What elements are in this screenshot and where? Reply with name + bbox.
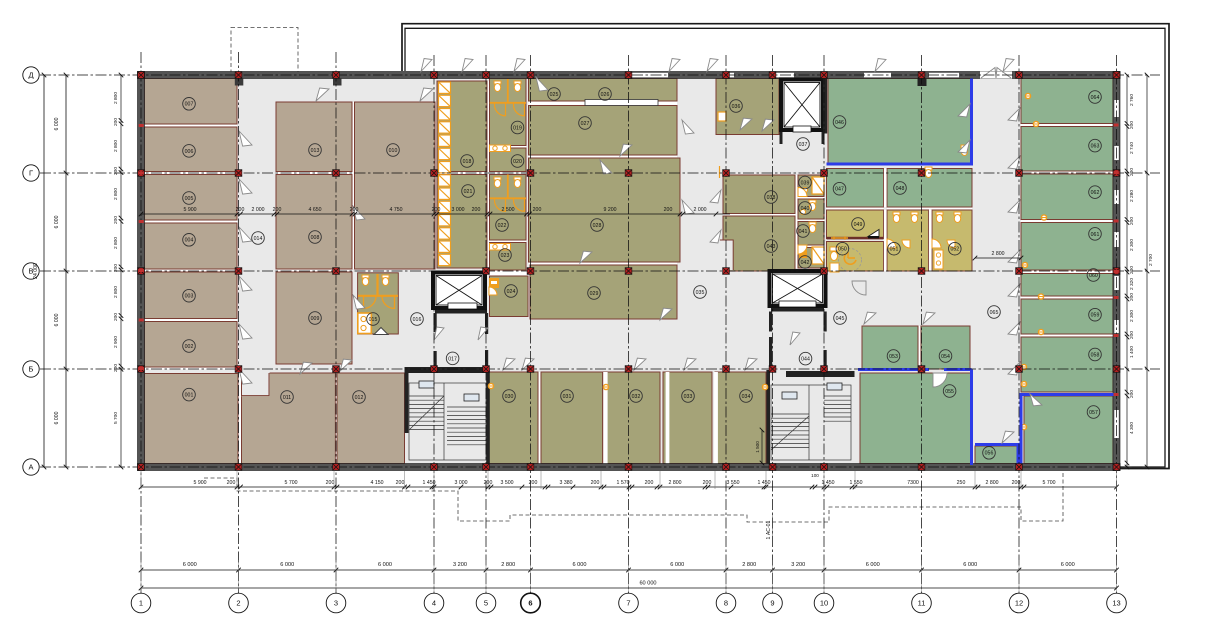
svg-text:040: 040 [801, 206, 810, 212]
svg-text:041: 041 [799, 229, 808, 235]
svg-text:200: 200 [113, 167, 119, 175]
svg-text:200: 200 [1129, 121, 1135, 129]
svg-text:200: 200 [236, 207, 245, 213]
svg-text:6 000: 6 000 [1061, 562, 1075, 568]
svg-text:200: 200 [1129, 331, 1135, 339]
svg-text:024: 024 [507, 289, 516, 295]
svg-text:5 700: 5 700 [113, 412, 119, 424]
svg-text:200: 200 [664, 207, 673, 213]
svg-text:021: 021 [464, 189, 473, 195]
svg-text:4 750: 4 750 [390, 207, 403, 213]
svg-text:4 150: 4 150 [371, 480, 384, 486]
svg-text:2 800: 2 800 [669, 480, 682, 486]
svg-text:036: 036 [732, 104, 741, 110]
svg-text:200: 200 [703, 480, 712, 486]
svg-text:065: 065 [990, 310, 999, 316]
svg-text:029: 029 [590, 291, 599, 297]
svg-text:4: 4 [432, 599, 436, 608]
svg-text:7300: 7300 [907, 480, 919, 486]
svg-text:039: 039 [801, 180, 810, 186]
svg-text:Г: Г [29, 169, 33, 178]
svg-text:023: 023 [501, 253, 510, 259]
svg-text:6 000: 6 000 [280, 562, 294, 568]
svg-text:200: 200 [529, 480, 538, 486]
svg-text:010: 010 [389, 148, 398, 154]
svg-text:2 500: 2 500 [502, 207, 515, 213]
svg-text:001: 001 [185, 393, 194, 399]
svg-text:200: 200 [350, 207, 359, 213]
svg-text:014: 014 [254, 236, 263, 242]
svg-text:2 800: 2 800 [113, 286, 119, 298]
svg-text:056: 056 [985, 451, 994, 457]
svg-text:200: 200 [1129, 390, 1135, 398]
svg-text:9: 9 [770, 599, 774, 608]
svg-text:042: 042 [801, 260, 810, 266]
svg-text:012: 012 [355, 395, 364, 401]
svg-text:5 900: 5 900 [184, 207, 197, 213]
svg-text:1 450: 1 450 [758, 480, 771, 486]
svg-text:200: 200 [113, 118, 119, 126]
svg-text:059: 059 [1091, 313, 1100, 319]
svg-text:24 000: 24 000 [33, 263, 39, 279]
svg-text:028: 028 [593, 223, 602, 229]
svg-text:2 800: 2 800 [986, 480, 999, 486]
svg-text:044: 044 [801, 357, 810, 363]
svg-text:019: 019 [513, 125, 522, 131]
svg-text:200: 200 [326, 480, 335, 486]
svg-text:005: 005 [185, 196, 194, 202]
svg-text:1 450: 1 450 [423, 480, 436, 486]
svg-text:11: 11 [918, 599, 926, 608]
svg-text:006: 006 [185, 149, 194, 155]
svg-text:045: 045 [836, 316, 845, 322]
svg-text:3 500: 3 500 [501, 480, 514, 486]
svg-text:2 900: 2 900 [113, 336, 119, 348]
svg-text:1 570: 1 570 [617, 480, 630, 486]
svg-text:038: 038 [767, 195, 776, 201]
svg-text:3 200: 3 200 [453, 562, 467, 568]
svg-text:058: 058 [1091, 352, 1100, 358]
svg-text:062: 062 [1091, 190, 1100, 196]
svg-text:007: 007 [185, 102, 194, 108]
svg-text:2 800: 2 800 [113, 188, 119, 200]
svg-text:200: 200 [1129, 168, 1135, 176]
svg-text:1 450: 1 450 [822, 480, 835, 486]
svg-text:5 700: 5 700 [1043, 480, 1056, 486]
svg-text:1 АС-01: 1 АС-01 [766, 520, 772, 539]
svg-text:60 000: 60 000 [639, 581, 656, 587]
svg-text:200: 200 [1012, 480, 1021, 486]
svg-text:037: 037 [799, 142, 808, 148]
svg-text:2 760: 2 760 [1129, 94, 1135, 106]
svg-text:018: 018 [463, 159, 472, 165]
svg-text:200: 200 [1129, 293, 1135, 301]
svg-text:6 000: 6 000 [866, 562, 880, 568]
svg-text:7: 7 [626, 599, 630, 608]
svg-text:049: 049 [854, 222, 863, 228]
svg-text:6 000: 6 000 [54, 313, 60, 326]
svg-text:200: 200 [645, 480, 654, 486]
svg-text:032: 032 [632, 394, 641, 400]
svg-text:030: 030 [505, 394, 514, 400]
svg-text:047: 047 [835, 187, 844, 193]
svg-text:051: 051 [890, 247, 899, 253]
svg-text:4 650: 4 650 [309, 207, 322, 213]
svg-text:025: 025 [550, 92, 559, 98]
svg-text:5 700: 5 700 [285, 480, 298, 486]
svg-text:2 300: 2 300 [1129, 239, 1135, 251]
svg-text:2 800: 2 800 [742, 562, 756, 568]
svg-text:100: 100 [811, 473, 819, 478]
svg-text:6 000: 6 000 [183, 562, 197, 568]
svg-text:011: 011 [283, 395, 291, 401]
svg-text:3: 3 [334, 599, 338, 608]
svg-text:200: 200 [113, 364, 119, 372]
svg-text:2 800: 2 800 [992, 251, 1005, 257]
svg-text:1 400: 1 400 [1129, 346, 1135, 358]
svg-text:200: 200 [472, 207, 481, 213]
svg-text:200: 200 [396, 480, 405, 486]
svg-text:034: 034 [742, 394, 751, 400]
svg-text:008: 008 [311, 235, 320, 241]
svg-text:016: 016 [413, 317, 422, 323]
svg-text:3 000: 3 000 [452, 207, 465, 213]
svg-text:053: 053 [889, 354, 898, 360]
svg-text:1 500: 1 500 [755, 441, 760, 453]
svg-text:046: 046 [835, 120, 844, 126]
svg-text:А: А [28, 463, 33, 472]
svg-text:200: 200 [1129, 217, 1135, 225]
svg-text:2 800: 2 800 [113, 237, 119, 249]
svg-text:250: 250 [957, 480, 966, 486]
svg-text:2 740: 2 740 [1129, 142, 1135, 154]
svg-text:3 200: 3 200 [791, 562, 805, 568]
svg-text:200: 200 [432, 207, 441, 213]
svg-text:2 800: 2 800 [501, 562, 515, 568]
svg-text:057: 057 [1089, 410, 1098, 416]
svg-text:10: 10 [820, 599, 828, 608]
svg-text:6 000: 6 000 [54, 215, 60, 228]
svg-text:003: 003 [185, 294, 194, 300]
svg-text:3 550: 3 550 [727, 480, 740, 486]
svg-text:002: 002 [185, 344, 194, 350]
svg-text:048: 048 [896, 186, 905, 192]
svg-text:200: 200 [113, 216, 119, 224]
svg-text:009: 009 [311, 316, 320, 322]
svg-text:2 320: 2 320 [1129, 278, 1135, 290]
svg-text:13: 13 [1112, 599, 1120, 608]
svg-text:060: 060 [1089, 273, 1098, 279]
svg-text:050: 050 [838, 247, 847, 253]
svg-text:2: 2 [236, 599, 240, 608]
svg-text:022: 022 [498, 223, 507, 229]
svg-text:Д: Д [28, 71, 33, 80]
svg-text:2 000: 2 000 [252, 207, 265, 213]
svg-text:3 380: 3 380 [560, 480, 573, 486]
svg-text:052: 052 [950, 247, 959, 253]
svg-text:6 000: 6 000 [573, 562, 587, 568]
svg-text:5 900: 5 900 [194, 480, 207, 486]
svg-text:064: 064 [1091, 95, 1100, 101]
svg-text:200: 200 [591, 480, 600, 486]
svg-text:1 550: 1 550 [850, 480, 863, 486]
svg-text:017: 017 [448, 356, 457, 362]
svg-text:031: 031 [563, 394, 572, 400]
svg-text:2 800: 2 800 [113, 140, 119, 152]
svg-text:6 000: 6 000 [670, 562, 684, 568]
svg-text:033: 033 [684, 394, 693, 400]
svg-text:Б: Б [29, 365, 34, 374]
svg-text:063: 063 [1091, 144, 1100, 150]
svg-text:054: 054 [941, 354, 950, 360]
svg-text:020: 020 [513, 159, 522, 165]
svg-text:6 000: 6 000 [963, 562, 977, 568]
svg-text:2 700: 2 700 [1148, 254, 1154, 266]
svg-text:3 000: 3 000 [455, 480, 468, 486]
svg-text:1: 1 [139, 599, 143, 608]
svg-text:2 800: 2 800 [113, 92, 119, 104]
svg-text:5: 5 [484, 599, 488, 608]
svg-text:6 000: 6 000 [54, 117, 60, 130]
svg-text:200: 200 [113, 313, 119, 321]
svg-text:027: 027 [581, 121, 590, 127]
svg-text:055: 055 [945, 389, 954, 395]
svg-text:2 300: 2 300 [1129, 310, 1135, 322]
svg-text:6 000: 6 000 [54, 411, 60, 424]
svg-text:026: 026 [601, 92, 610, 98]
svg-text:9 200: 9 200 [604, 207, 617, 213]
svg-text:013: 013 [311, 148, 320, 154]
svg-text:8: 8 [724, 599, 728, 608]
svg-text:200: 200 [227, 480, 236, 486]
svg-text:043: 043 [767, 244, 776, 250]
svg-text:4 300: 4 300 [1129, 422, 1135, 434]
svg-text:200: 200 [1129, 266, 1135, 274]
svg-text:200: 200 [533, 207, 542, 213]
svg-text:200: 200 [113, 264, 119, 272]
svg-text:061: 061 [1091, 232, 1100, 238]
svg-text:2 280: 2 280 [1129, 190, 1135, 202]
svg-text:2 000: 2 000 [694, 207, 707, 213]
svg-text:004: 004 [185, 238, 194, 244]
svg-text:035: 035 [696, 290, 705, 296]
svg-text:200: 200 [273, 207, 282, 213]
svg-text:6 000: 6 000 [378, 562, 392, 568]
svg-text:015: 015 [369, 317, 378, 323]
svg-text:6: 6 [528, 599, 532, 608]
svg-text:12: 12 [1015, 599, 1023, 608]
